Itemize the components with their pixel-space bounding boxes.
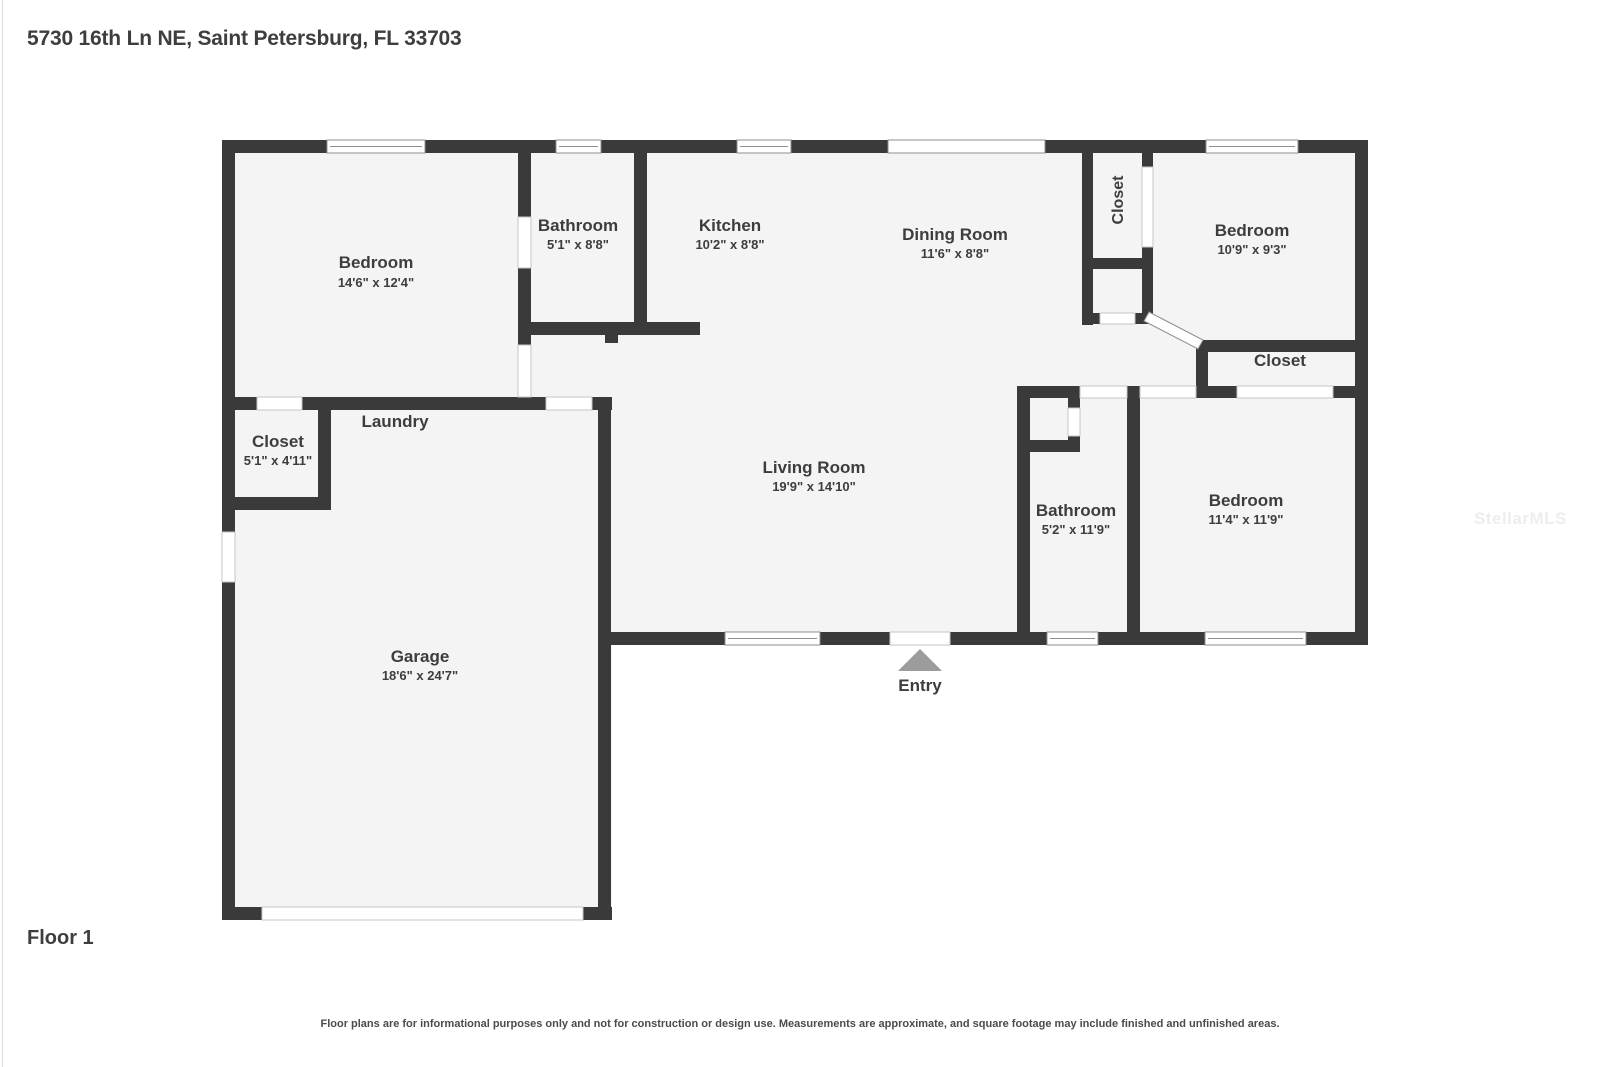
svg-text:Closet: Closet — [252, 432, 304, 451]
window — [737, 140, 791, 153]
room-label-bathroom-1: Bathroom 5'1" x 8'8" — [538, 216, 618, 252]
window — [556, 140, 601, 153]
window — [1206, 140, 1298, 153]
window — [725, 632, 820, 645]
room-label-laundry: Laundry — [361, 412, 429, 431]
svg-text:Laundry: Laundry — [361, 412, 429, 431]
svg-text:5'2" x 11'9": 5'2" x 11'9" — [1042, 522, 1110, 537]
svg-text:Closet: Closet — [1110, 175, 1127, 225]
svg-text:Living Room: Living Room — [763, 458, 866, 477]
svg-text:Bedroom: Bedroom — [1215, 221, 1290, 240]
watermark: StellarMLS — [1474, 509, 1567, 529]
svg-text:Garage: Garage — [391, 647, 450, 666]
room-label-kitchen: Kitchen 10'2" x 8'8" — [695, 216, 764, 252]
svg-text:18'6" x 24'7": 18'6" x 24'7" — [382, 668, 458, 683]
svg-text:Bedroom: Bedroom — [339, 253, 414, 272]
entry-arrow-icon — [898, 649, 942, 671]
disclaimer-text: Floor plans are for informational purpos… — [0, 1018, 1600, 1030]
svg-text:11'6" x 8'8": 11'6" x 8'8" — [921, 246, 989, 261]
room-label-bathroom-2: Bathroom 5'2" x 11'9" — [1036, 501, 1116, 537]
svg-text:10'9" x 9'3": 10'9" x 9'3" — [1217, 242, 1286, 257]
room-label-bedroom-1: Bedroom 14'6" x 12'4" — [338, 253, 414, 290]
room-label-closet-bedroom-2: Closet — [1254, 351, 1306, 370]
entry-label: Entry — [898, 676, 942, 695]
svg-text:11'4" x 11'9": 11'4" x 11'9" — [1209, 512, 1284, 527]
svg-text:Bathroom: Bathroom — [538, 216, 618, 235]
svg-text:14'6" x 12'4": 14'6" x 12'4" — [338, 275, 414, 290]
svg-text:5'1" x 4'11": 5'1" x 4'11" — [244, 453, 312, 468]
svg-text:10'2" x 8'8": 10'2" x 8'8" — [695, 237, 764, 252]
svg-text:Bedroom: Bedroom — [1209, 491, 1284, 510]
floor-plan-canvas: Bedroom 14'6" x 12'4" Bathroom 5'1" x 8'… — [0, 0, 1600, 1067]
svg-text:19'9" x 14'10": 19'9" x 14'10" — [772, 479, 856, 494]
svg-text:Closet: Closet — [1254, 351, 1306, 370]
floor-label: Floor 1 — [27, 927, 94, 950]
svg-text:5'1" x 8'8": 5'1" x 8'8" — [547, 237, 609, 252]
svg-text:Dining Room: Dining Room — [902, 225, 1008, 244]
entry-marker: Entry — [898, 649, 942, 695]
window-band — [888, 140, 1045, 153]
room-label-living-room: Living Room 19'9" x 14'10" — [763, 458, 866, 494]
window — [327, 140, 425, 153]
room-label-garage: Garage 18'6" x 24'7" — [382, 647, 458, 683]
svg-text:Bathroom: Bathroom — [1036, 501, 1116, 520]
window — [1205, 632, 1306, 645]
room-label-bedroom-2: Bedroom 10'9" x 9'3" — [1215, 221, 1290, 257]
svg-text:Kitchen: Kitchen — [699, 216, 761, 235]
room-label-closet-laundry: Closet 5'1" x 4'11" — [244, 432, 312, 468]
room-label-bedroom-3: Bedroom 11'4" x 11'9" — [1209, 491, 1284, 527]
window — [1047, 632, 1098, 645]
room-label-closet-hall: Closet — [1110, 175, 1127, 225]
